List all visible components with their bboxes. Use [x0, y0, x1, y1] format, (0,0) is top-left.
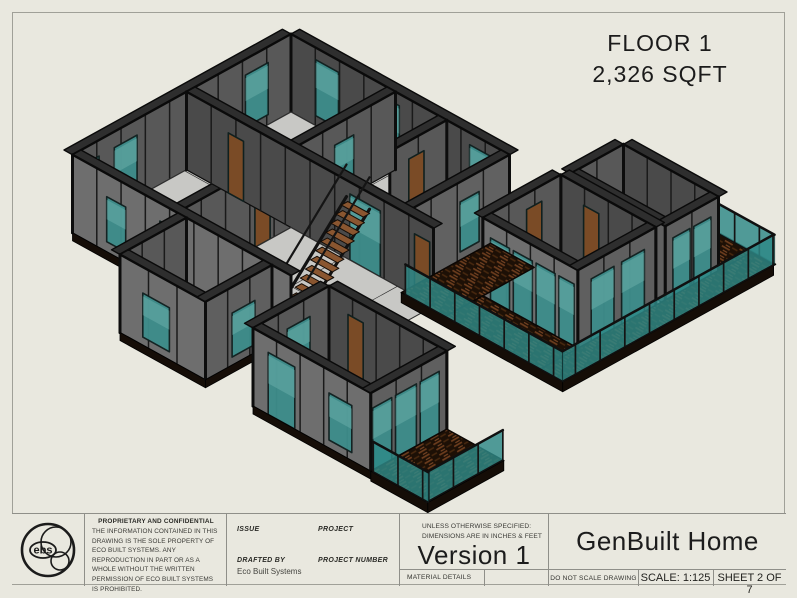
floor-annotation: FLOOR 1 2,326 SQFT	[575, 28, 745, 90]
version-text: Version 1	[400, 540, 548, 571]
sheet-number: SHEET 2 OF 7	[713, 572, 786, 596]
proprietary-notice: PROPRIETARY AND CONFIDENTIAL THE INFORMA…	[85, 514, 227, 586]
issue-label: ISSUE	[237, 526, 260, 533]
proprietary-heading: PROPRIETARY AND CONFIDENTIAL	[92, 518, 220, 525]
version-cell: UNLESS OTHERWISE SPECIFIED: DIMENSIONS A…	[400, 514, 549, 586]
sheet-border	[12, 12, 785, 584]
company-logo: ebs	[12, 514, 85, 586]
issue-project-cell: ISSUE PROJECT DRAFTED BY Eco Built Syste…	[227, 514, 400, 586]
project-number-label: PROJECT NUMBER	[318, 557, 388, 564]
tolerance-note: UNLESS OTHERWISE SPECIFIED: DIMENSIONS A…	[422, 522, 542, 541]
scale-value: SCALE: 1:125	[638, 572, 713, 584]
drawing-title: GenBuilt Home	[549, 526, 786, 557]
scale-row: DO NOT SCALE DRAWING SCALE: 1:125 SHEET …	[549, 569, 786, 586]
do-not-scale-label: DO NOT SCALE DRAWING	[549, 575, 638, 582]
drafted-by-label: DRAFTED BY	[237, 557, 285, 564]
material-details-label: MATERIAL DETAILS	[407, 574, 471, 581]
title-block: ebs PROPRIETARY AND CONFIDENTIAL THE INF…	[12, 513, 786, 585]
ebs-logo-icon: ebs	[19, 521, 77, 579]
drawing-title-cell: GenBuilt Home DO NOT SCALE DRAWING SCALE…	[549, 514, 786, 586]
material-details-row: MATERIAL DETAILS	[400, 569, 548, 586]
drafted-by-value: Eco Built Systems	[237, 567, 301, 576]
project-label: PROJECT	[318, 526, 353, 533]
logo-text: ebs	[34, 545, 53, 557]
area-label: 2,326 SQFT	[575, 59, 745, 90]
floor-label: FLOOR 1	[575, 28, 745, 59]
proprietary-body: THE INFORMATION CONTAINED IN THIS DRAWIN…	[92, 527, 220, 594]
